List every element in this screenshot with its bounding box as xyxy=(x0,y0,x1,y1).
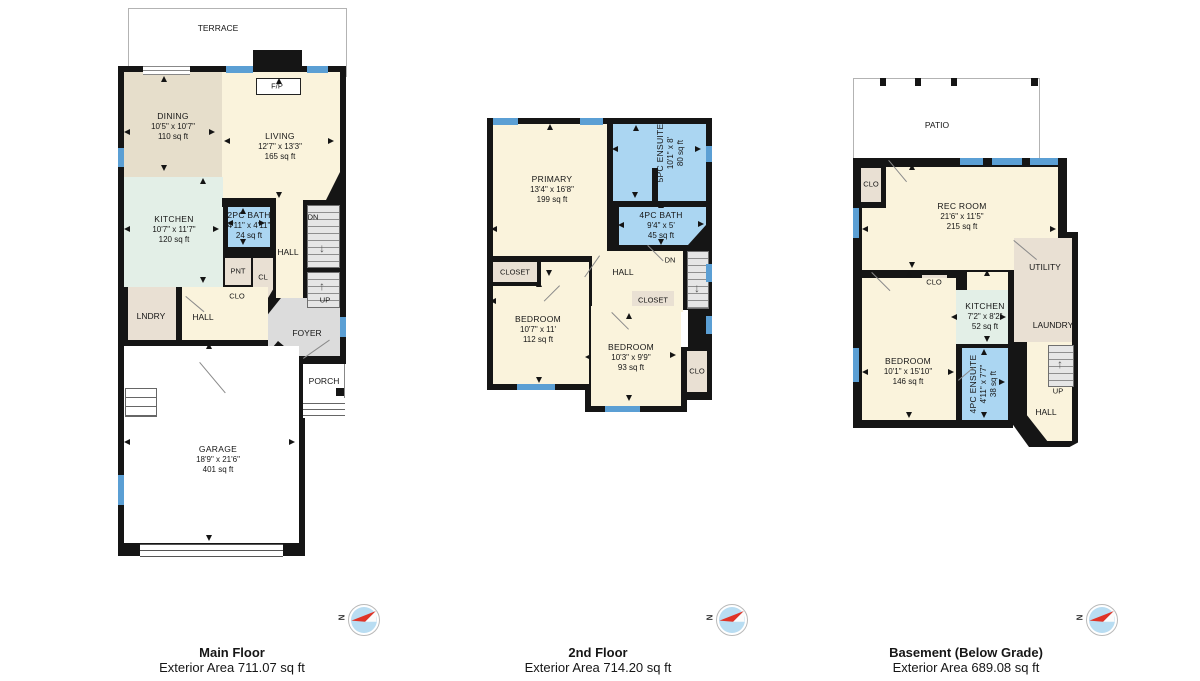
dimension-arrow xyxy=(491,226,497,232)
main-floor-title: Main Floor xyxy=(82,645,382,660)
bedroom2-clo-label: CLO xyxy=(689,367,704,376)
window xyxy=(340,317,346,337)
window xyxy=(706,316,712,334)
window xyxy=(226,66,253,73)
window xyxy=(960,158,983,165)
second-floor-area: Exterior Area 714.20 sq ft xyxy=(448,660,748,675)
closet-cl-label: CL xyxy=(258,273,268,282)
dimension-arrow xyxy=(200,178,206,184)
second-dn-label: DN xyxy=(665,256,676,265)
window xyxy=(853,348,859,382)
window xyxy=(118,148,124,167)
window xyxy=(580,118,603,125)
dimension-arrow xyxy=(695,146,701,152)
compass-rose: N xyxy=(716,604,748,636)
window xyxy=(605,406,640,412)
second-floor-caption: 2nd Floor Exterior Area 714.20 sq ft xyxy=(448,645,748,675)
living-hall-wall xyxy=(222,198,276,207)
dimension-arrow xyxy=(948,369,954,375)
dimension-arrow xyxy=(632,192,638,198)
basement-area: Exterior Area 689.08 sq ft xyxy=(816,660,1116,675)
dimension-arrow xyxy=(670,352,676,358)
dimension-arrow xyxy=(633,125,639,131)
dimension-arrow xyxy=(626,313,632,319)
dimension-arrow xyxy=(999,379,1005,385)
dimension-arrow xyxy=(490,298,496,304)
dimension-arrow xyxy=(240,208,246,214)
kitchen-label: KITCHEN10'7" x 11'7"120 sq ft xyxy=(152,214,195,246)
hall-closet-label: CLOSET xyxy=(638,296,668,305)
stairs-down-arrow-icon: ↓ xyxy=(694,282,700,294)
dimension-arrow xyxy=(213,226,219,232)
compass-rose: N xyxy=(348,604,380,636)
hall-lower-label: HALL xyxy=(192,312,213,322)
stairs-up-arrow-icon: ↑ xyxy=(1057,358,1063,370)
dimension-arrow xyxy=(984,270,990,276)
hall-upper-label: HALL xyxy=(277,247,298,257)
dimension-arrow xyxy=(124,439,130,445)
floorplan-sheet: TERRACE ↓ ↑ F/P DINING10'5" x 10'7"110 s… xyxy=(0,0,1200,681)
compass-north-label: N xyxy=(1075,615,1084,621)
dimension-arrow xyxy=(240,239,246,245)
dimension-arrow xyxy=(585,354,591,360)
bedroom2-label: BEDROOM10'3" x 9'9"93 sq ft xyxy=(608,342,654,374)
dimension-arrow xyxy=(227,220,233,226)
dimension-arrow xyxy=(289,439,295,445)
window xyxy=(493,118,518,125)
window xyxy=(517,384,555,390)
basement-hall-label: HALL xyxy=(1035,407,1056,417)
patio-label: PATIO xyxy=(925,120,949,130)
garage-label: GARAGE18'9" x 21'6"401 sq ft xyxy=(196,444,240,476)
dimension-arrow xyxy=(981,349,987,355)
porch-steps xyxy=(303,398,345,418)
bedroom1-label: BEDROOM10'7" x 11'112 sq ft xyxy=(515,314,561,346)
dimension-arrow xyxy=(161,76,167,82)
dimension-arrow xyxy=(658,239,664,245)
dimension-arrow xyxy=(909,164,915,170)
dimension-arrow xyxy=(612,146,618,152)
basement-bedroom xyxy=(862,278,956,420)
dimension-arrow xyxy=(328,138,334,144)
stairs-up-label: UP xyxy=(320,296,330,305)
dimension-arrow xyxy=(698,221,704,227)
dimension-arrow xyxy=(909,262,915,268)
dimension-arrow xyxy=(259,220,265,226)
dimension-arrow xyxy=(984,336,990,342)
bath-2pc-label: 2PC BATH4'11" x 4'11"24 sq ft xyxy=(227,210,270,242)
dimension-arrow xyxy=(224,138,230,144)
basement-up-label: UP xyxy=(1053,387,1063,396)
rec-room-label: REC ROOM21'6" x 11'5"215 sq ft xyxy=(937,201,986,233)
stairs-dn-label: DN xyxy=(308,213,319,222)
patio-area xyxy=(853,78,1040,160)
main-floor-area: Exterior Area 711.07 sq ft xyxy=(82,660,382,675)
porch-label: PORCH xyxy=(309,376,340,386)
laundry-label: LNDRY xyxy=(137,311,166,321)
window xyxy=(992,158,1022,165)
window xyxy=(706,264,712,282)
bath-4pc-label: 4PC BATH9'4" x 5'45 sq ft xyxy=(639,210,682,242)
utility-label: UTILITY xyxy=(1029,262,1061,272)
dimension-arrow xyxy=(658,202,664,208)
porch-post xyxy=(336,388,344,396)
compass-rose: N xyxy=(1086,604,1118,636)
bedroom-clo-label: CLO xyxy=(926,278,941,287)
dimension-arrow xyxy=(276,192,282,198)
dimension-arrow xyxy=(206,343,212,349)
dimension-arrow xyxy=(161,165,167,171)
dimension-arrow xyxy=(209,129,215,135)
basement-bedroom-label: BEDROOM10'1" x 15'10"146 sq ft xyxy=(884,356,932,388)
basement-title: Basement (Below Grade) xyxy=(816,645,1116,660)
second-hall-label: HALL xyxy=(612,267,633,277)
primary-closet-label: CLOSET xyxy=(500,268,530,277)
dimension-arrow xyxy=(618,222,624,228)
stairs-up-arrow-icon: ↑ xyxy=(319,280,325,292)
dimension-arrow xyxy=(124,226,130,232)
rec-clo-label: CLO xyxy=(863,180,878,189)
dimension-arrow xyxy=(547,124,553,130)
dimension-arrow xyxy=(981,412,987,418)
second-floor-title: 2nd Floor xyxy=(448,645,748,660)
basement-kitchen-label: KITCHEN7'2" x 8'2"52 sq ft xyxy=(965,301,1004,333)
dimension-arrow xyxy=(200,277,206,283)
dimension-arrow xyxy=(1000,314,1006,320)
living-label: LIVING12'7" x 13'3"165 sq ft xyxy=(258,131,302,163)
ensuite-4pc-label: 4PC ENSUITE4'11" x 7'7"38 sq ft xyxy=(968,354,1000,413)
patio-post xyxy=(1031,78,1038,86)
dining-window xyxy=(143,66,190,75)
stairs-down-arrow-icon: ↓ xyxy=(319,242,325,254)
dimension-arrow xyxy=(862,369,868,375)
closet-clo-label: CLO xyxy=(229,292,244,301)
dimension-arrow xyxy=(206,535,212,541)
window xyxy=(118,475,124,505)
main-floor-caption: Main Floor Exterior Area 711.07 sq ft xyxy=(82,645,382,675)
patio-post xyxy=(915,78,921,86)
dimension-arrow xyxy=(276,78,282,84)
laundry-label-basement: LAUNDRY xyxy=(1033,320,1073,330)
foyer-label: FOYER xyxy=(292,328,321,338)
window xyxy=(706,146,712,162)
dimension-arrow xyxy=(951,314,957,320)
dimension-arrow xyxy=(536,281,542,287)
pantry-label: PNT xyxy=(231,267,246,276)
dimension-arrow xyxy=(536,377,542,383)
primary-label: PRIMARY13'4" x 16'8"199 sq ft xyxy=(530,174,574,206)
dimension-arrow xyxy=(546,270,552,276)
ensuite-5pc-label: 5PC ENSUITE10'1" x 8'80 sq ft xyxy=(655,123,687,182)
dimension-arrow xyxy=(906,271,912,277)
terrace-label: TERRACE xyxy=(198,23,239,33)
dining-label: DINING10'5" x 10'7"110 sq ft xyxy=(151,111,195,143)
compass-north-label: N xyxy=(337,615,346,621)
compass-north-label: N xyxy=(705,615,714,621)
patio-post xyxy=(951,78,957,86)
dimension-arrow xyxy=(862,226,868,232)
dimension-arrow xyxy=(906,412,912,418)
patio-post xyxy=(880,78,886,86)
garage-door xyxy=(140,544,283,557)
dimension-arrow xyxy=(1050,226,1056,232)
garage-step-block xyxy=(125,388,157,417)
dimension-arrow xyxy=(626,395,632,401)
window xyxy=(307,66,328,73)
basement-caption: Basement (Below Grade) Exterior Area 689… xyxy=(816,645,1116,675)
window xyxy=(853,208,859,238)
dimension-arrow xyxy=(124,129,130,135)
window xyxy=(1030,158,1058,165)
